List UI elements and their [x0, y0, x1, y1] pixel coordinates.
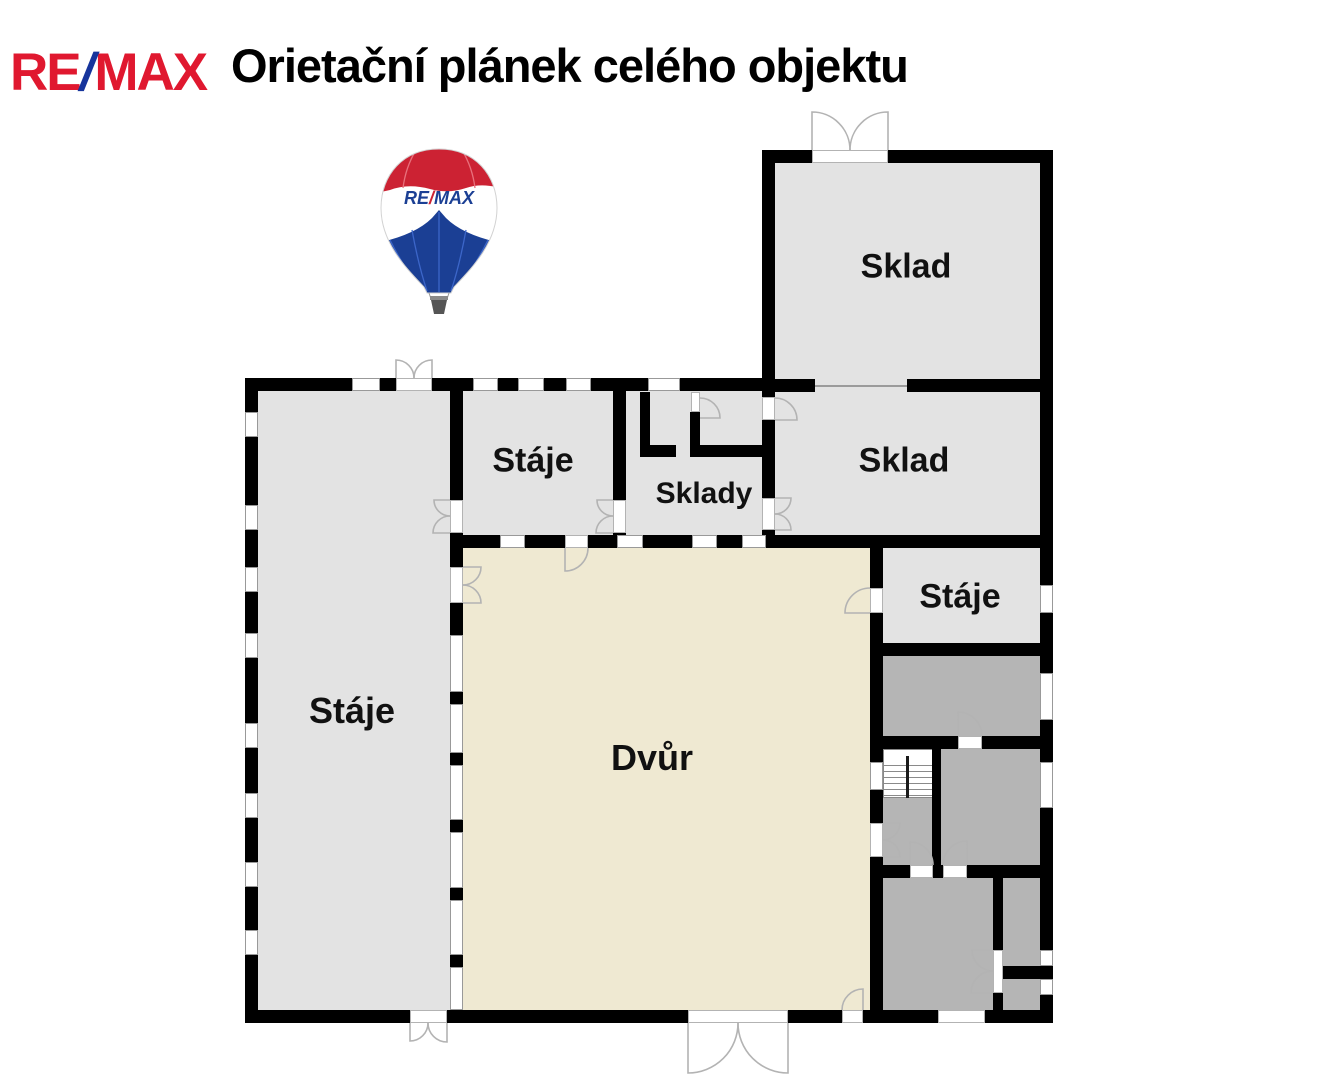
wall-segment: [245, 378, 775, 391]
door: [762, 397, 775, 420]
room-dark-bottom-left: [876, 872, 1000, 1014]
courtyard-dvur: [458, 542, 876, 1016]
window: [1040, 979, 1053, 995]
wall-segment: [1003, 966, 1053, 979]
wall-segment: [762, 379, 815, 392]
wall-segment: [640, 445, 676, 457]
wall-segment: [245, 1010, 1053, 1023]
window: [245, 633, 258, 658]
door: [410, 1010, 447, 1023]
window: [742, 535, 766, 548]
room-dark-bottom-right-upper: [998, 872, 1046, 972]
window: [870, 762, 883, 790]
wall-segment: [245, 378, 258, 1023]
window: [1040, 762, 1053, 808]
door: [450, 567, 463, 603]
window: [617, 535, 643, 548]
door: [870, 588, 883, 613]
room-label-sklady: Sklady: [656, 477, 753, 511]
door: [688, 1010, 788, 1023]
door: [691, 392, 700, 412]
wall-segment: [932, 736, 941, 878]
window: [473, 378, 498, 391]
door: [958, 736, 982, 749]
window: [245, 862, 258, 887]
door-arc-icon: [688, 1023, 738, 1073]
window: [450, 765, 463, 820]
door: [396, 378, 432, 391]
window: [450, 900, 463, 955]
window: [245, 412, 258, 437]
door: [943, 865, 967, 878]
door: [842, 1010, 863, 1023]
door-arc-icon: [414, 360, 432, 378]
window: [648, 378, 680, 391]
room-dark-upper: [876, 650, 1046, 742]
window: [450, 832, 463, 888]
door-arc-icon: [396, 360, 414, 378]
room-label-sklad-right: Sklad: [859, 442, 950, 481]
wall-segment: [907, 379, 1053, 392]
room-label-sklad-top: Sklad: [861, 248, 952, 287]
door: [450, 500, 463, 533]
window: [245, 505, 258, 530]
window: [245, 793, 258, 818]
door: [762, 498, 775, 530]
window: [1040, 950, 1053, 966]
window: [352, 378, 380, 391]
door: [870, 823, 883, 857]
wall-segment: [870, 643, 1053, 656]
door-arc-icon: [738, 1023, 788, 1073]
window: [500, 535, 525, 548]
staircase-divider: [906, 756, 909, 798]
wall-segment: [690, 445, 770, 457]
room-label-staje-right: Stáje: [919, 578, 1000, 617]
wall-segment: [640, 392, 650, 447]
wall-segment: [888, 150, 1053, 163]
window: [518, 378, 544, 391]
door-arc-icon: [812, 112, 850, 150]
window: [450, 704, 463, 753]
door: [993, 950, 1003, 993]
door-arc-icon: [410, 1023, 428, 1041]
room-label-dvur: Dvůr: [611, 737, 693, 779]
door: [565, 535, 588, 548]
room-label-staje-middle: Stáje: [492, 442, 573, 481]
door: [613, 500, 626, 533]
window: [1040, 585, 1053, 613]
window: [566, 378, 591, 391]
window: [692, 535, 717, 548]
door-arc-icon: [428, 1023, 447, 1042]
window: [245, 930, 258, 955]
door: [812, 150, 888, 163]
wall-segment: [762, 150, 775, 392]
window: [1040, 673, 1053, 720]
door: [910, 865, 933, 878]
wall-segment: [993, 993, 1003, 1014]
window: [245, 723, 258, 748]
door-arc-icon: [850, 112, 888, 150]
wall-segment: [993, 878, 1003, 950]
window: [245, 567, 258, 592]
door: [938, 1010, 985, 1023]
window: [450, 967, 463, 1010]
room-label-staje-left: Stáje: [309, 690, 395, 732]
window: [450, 635, 463, 692]
floor-plan: Sklad Sklad Stáje Sklady Stáje Stáje Dvů…: [0, 0, 1337, 1080]
